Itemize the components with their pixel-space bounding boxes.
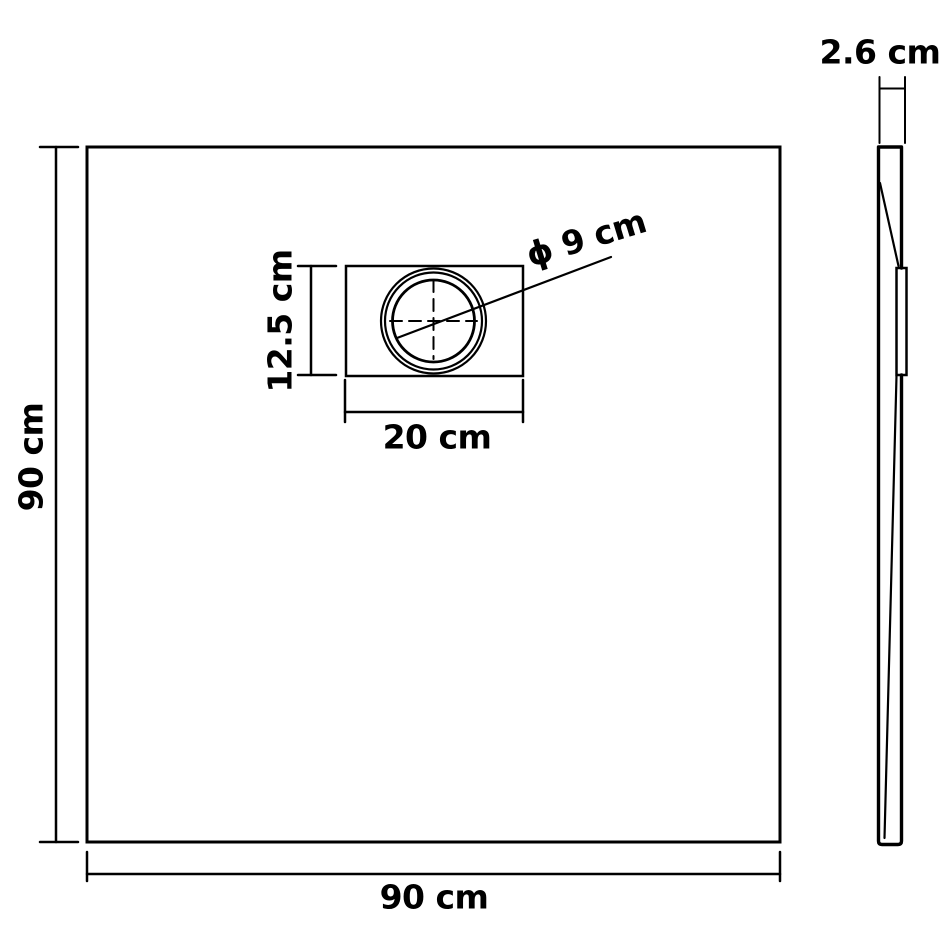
dimension-drawing: 90 cm 90 cm 12.5 cm 20 cm ϕ 9 cm 2.6 cm [0,0,947,947]
side-view-top-slope [880,183,899,266]
label-drain-box-width-20cm: 20 cm [383,421,492,454]
label-thickness-2-6cm: 2.6 cm [820,36,941,69]
side-view-bottom-slope [885,376,897,838]
label-drain-box-height-12-5cm: 12.5 cm [264,249,297,392]
dimension-12-5-cm [298,266,336,375]
side-view-drain-housing [897,268,907,375]
label-width-90cm: 90 cm [380,881,489,914]
side-view-profile [879,147,907,845]
dimension-20-cm [345,380,523,422]
drawing-linework [0,0,947,947]
dimension-2-6-cm [880,77,906,143]
label-height-90cm: 90 cm [15,403,48,512]
side-view-outline [879,147,902,845]
tray-outline-square [87,147,780,842]
